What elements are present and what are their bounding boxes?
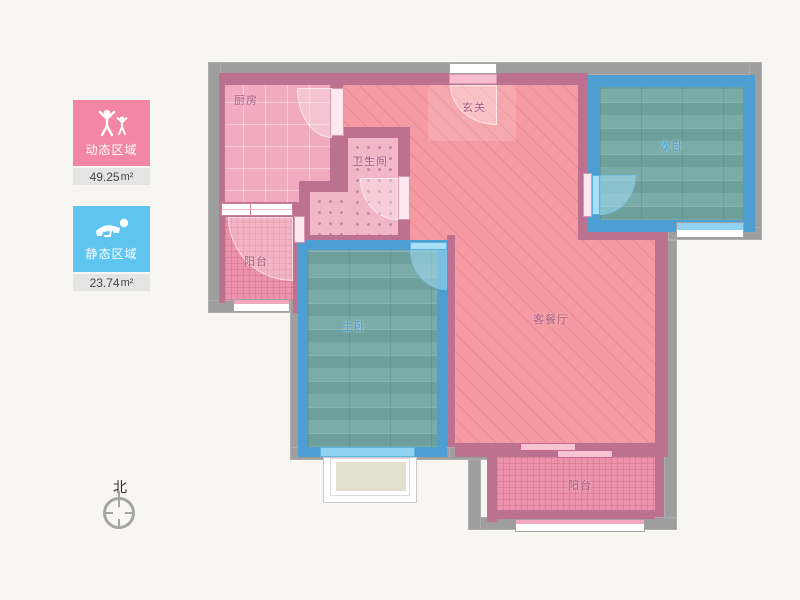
balcony2-window-sill	[516, 520, 644, 524]
balcony2-window	[515, 519, 645, 532]
wall-bedroom2-right	[743, 75, 755, 232]
bay-window-glass	[336, 462, 406, 491]
legend-static-area: 静态区域	[73, 206, 150, 272]
dynamic-area-icon	[93, 108, 131, 138]
static-area-icon	[91, 216, 133, 242]
entry-door-leaf	[449, 74, 497, 84]
label-living-dining: 客餐厅	[533, 311, 569, 327]
legend-dynamic-area: 动态区域	[73, 100, 150, 166]
wall-living-right	[655, 238, 668, 455]
wall-bedroom2-top	[588, 75, 755, 87]
wall-top-inner	[219, 73, 585, 85]
legend-dynamic-value: 49.25m²	[73, 168, 150, 185]
label-kitchen: 厨房	[234, 92, 258, 108]
legend-static-label: 静态区域	[85, 245, 137, 262]
room-master-bedroom-area[interactable]	[308, 250, 437, 447]
legend-dynamic-label: 动态区域	[85, 141, 137, 158]
bathroom-door-frame	[398, 176, 410, 220]
wall-master-left	[298, 240, 308, 457]
dynamic-area-value: 49.25	[90, 170, 120, 184]
balcony1-door-frame	[294, 216, 305, 243]
bay-window-frame	[323, 457, 417, 503]
static-area-value: 23.74	[90, 276, 120, 290]
north-label: 北	[104, 477, 136, 497]
compass-icon	[103, 497, 135, 529]
balcony1-window	[233, 299, 290, 312]
balcony1-window-sill	[234, 300, 289, 304]
static-area-unit: m²	[121, 277, 134, 289]
bedroom2-door-frame	[583, 173, 592, 217]
master-door-leaf	[410, 242, 447, 250]
entry-door-opening	[449, 63, 497, 74]
kitchen-balcony-window	[221, 203, 293, 216]
label-bathroom: 卫生间	[352, 153, 388, 169]
wall-balcony2-right-inner	[655, 457, 664, 517]
wall-balcony2-bottom-inner	[497, 510, 655, 519]
label-master-bedroom: 主卧	[342, 318, 366, 334]
label-second-bedroom: 次卧	[660, 138, 684, 154]
wall-left-inner	[219, 73, 225, 303]
wall-bath-left-upper	[337, 127, 348, 187]
dynamic-area-unit: m²	[121, 171, 134, 183]
kitchen-door-frame	[331, 88, 344, 136]
bedroom2-window	[676, 222, 744, 238]
kitchen-balcony-window-sill	[222, 209, 292, 210]
legend-static-value: 23.74m²	[73, 274, 150, 291]
label-balcony-left: 阳台	[244, 253, 268, 269]
wall-living-left	[447, 235, 455, 447]
sliding-door-panel-2	[557, 450, 613, 458]
room-bathroom-area-lower[interactable]	[310, 192, 348, 235]
bedroom2-window-glass	[677, 223, 743, 230]
wall-exterior-balcony-left	[468, 455, 481, 530]
wall-balcony2-left-inner	[487, 452, 497, 522]
master-window	[320, 447, 415, 457]
label-balcony-bottom: 阳台	[568, 477, 592, 493]
bedroom2-door-leaf	[592, 175, 600, 215]
label-entrance: 玄关	[462, 99, 486, 115]
